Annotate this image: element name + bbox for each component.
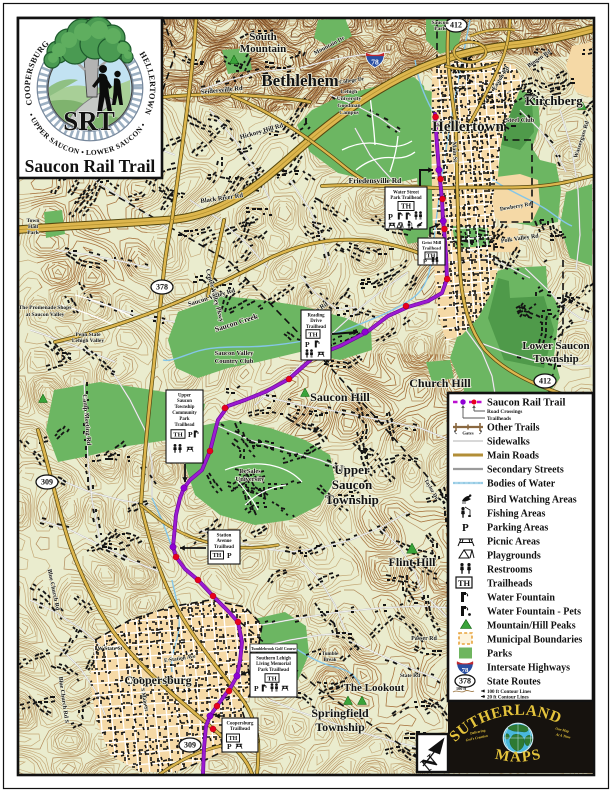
svg-text:TH: TH bbox=[173, 431, 182, 438]
svg-text:P: P bbox=[254, 684, 259, 693]
svg-text:South: South bbox=[249, 31, 277, 43]
svg-text:Main St: Main St bbox=[450, 142, 457, 163]
svg-text:P: P bbox=[227, 742, 232, 751]
svg-text:State Routes: State Routes bbox=[487, 677, 541, 688]
svg-text:Trailhead: Trailhead bbox=[175, 423, 195, 428]
svg-text:Secondary Streets: Secondary Streets bbox=[487, 465, 564, 476]
svg-text:Bird Watching Areas: Bird Watching Areas bbox=[487, 495, 577, 506]
svg-text:SRT: SRT bbox=[63, 106, 115, 136]
svg-text:Road Crossings: Road Crossings bbox=[487, 409, 522, 415]
svg-text:Fishing Areas: Fishing Areas bbox=[487, 509, 546, 520]
svg-text:Upper: Upper bbox=[334, 462, 370, 477]
svg-text:Station: Station bbox=[217, 533, 232, 538]
svg-text:378: 378 bbox=[156, 283, 168, 292]
svg-text:Other Trails: Other Trails bbox=[487, 423, 540, 434]
svg-text:Saucon Hill: Saucon Hill bbox=[310, 390, 370, 404]
svg-text:Bodies of Water: Bodies of Water bbox=[487, 479, 556, 490]
svg-text:Water Street: Water Street bbox=[393, 190, 419, 195]
svg-text:100 ft Contour Lines: 100 ft Contour Lines bbox=[487, 690, 531, 695]
svg-text:TH: TH bbox=[213, 553, 222, 559]
svg-text:Township: Township bbox=[175, 405, 195, 410]
svg-text:Mountain: Mountain bbox=[240, 43, 286, 55]
svg-text:P: P bbox=[305, 340, 310, 349]
svg-text:Mountain/Hill Peaks: Mountain/Hill Peaks bbox=[487, 621, 576, 632]
svg-text:P: P bbox=[188, 430, 193, 439]
svg-text:Water Fountain: Water Fountain bbox=[487, 593, 555, 604]
svg-text:P: P bbox=[462, 522, 469, 534]
svg-text:Reading: Reading bbox=[307, 313, 325, 318]
svg-text:University: University bbox=[337, 96, 362, 102]
svg-text:Park Trailhead: Park Trailhead bbox=[390, 196, 421, 201]
svg-text:Parking Areas: Parking Areas bbox=[487, 523, 548, 534]
svg-text:Avenue: Avenue bbox=[216, 539, 231, 544]
svg-text:Community: Community bbox=[172, 411, 197, 416]
svg-text:Country Club: Country Club bbox=[215, 358, 254, 365]
svg-text:Tumblebrook Golf Course: Tumblebrook Golf Course bbox=[251, 646, 296, 651]
svg-text:University: University bbox=[236, 476, 266, 483]
svg-text:Kirchberg: Kirchberg bbox=[525, 93, 583, 108]
svg-text:TH: TH bbox=[458, 578, 471, 588]
svg-text:309: 309 bbox=[41, 478, 53, 487]
svg-text:TH: TH bbox=[267, 675, 276, 682]
svg-text:Church Hill: Church Hill bbox=[409, 376, 471, 390]
svg-text:DeSales: DeSales bbox=[239, 468, 261, 475]
svg-text:Tumble: Tumble bbox=[322, 652, 339, 657]
svg-text:Springfield: Springfield bbox=[311, 706, 369, 720]
svg-text:P: P bbox=[423, 259, 427, 266]
svg-text:Saucon: Saucon bbox=[177, 399, 192, 404]
svg-text:Break: Break bbox=[324, 658, 337, 663]
svg-text:Flint Hill: Flint Hill bbox=[388, 555, 436, 569]
svg-text:100 ft: 100 ft bbox=[456, 686, 467, 691]
svg-text:Playgrounds: Playgrounds bbox=[487, 551, 541, 562]
svg-text:309: 309 bbox=[184, 741, 196, 750]
svg-text:P: P bbox=[388, 213, 393, 222]
svg-text:412: 412 bbox=[539, 377, 551, 386]
svg-text:Park: Park bbox=[179, 417, 189, 422]
svg-text:Trailhead: Trailhead bbox=[230, 727, 250, 732]
svg-text:Campus: Campus bbox=[339, 110, 359, 116]
svg-text:Saucon Rail Trail: Saucon Rail Trail bbox=[25, 156, 156, 176]
svg-text:Coopersburg: Coopersburg bbox=[227, 721, 255, 726]
svg-text:Hellertown: Hellertown bbox=[432, 119, 504, 135]
svg-text:Trailhead: Trailhead bbox=[214, 545, 234, 550]
svg-text:TH: TH bbox=[308, 331, 317, 338]
svg-text:TH: TH bbox=[427, 254, 436, 260]
svg-text:The Lookout: The Lookout bbox=[344, 682, 405, 694]
svg-text:Sidewalks: Sidewalks bbox=[487, 437, 530, 448]
svg-text:Picnic Areas: Picnic Areas bbox=[487, 537, 540, 548]
svg-text:Friedensville Rd: Friedensville Rd bbox=[349, 176, 403, 185]
svg-text:W State St: W State St bbox=[98, 646, 123, 652]
svg-text:The Promenade Shops: The Promenade Shops bbox=[19, 305, 72, 311]
svg-text:Steel Club: Steel Club bbox=[506, 117, 535, 124]
svg-text:78: 78 bbox=[371, 58, 379, 67]
svg-text:Upper: Upper bbox=[178, 393, 192, 398]
svg-text:20 ft Contour Lines: 20 ft Contour Lines bbox=[487, 696, 529, 701]
svg-text:Saucon Valley: Saucon Valley bbox=[215, 350, 255, 357]
svg-text:Southern Lehigh: Southern Lehigh bbox=[256, 656, 291, 661]
svg-text:at Saucon Valley: at Saucon Valley bbox=[26, 312, 65, 318]
svg-text:Coopersburg: Coopersburg bbox=[124, 673, 191, 687]
svg-text:Municipal Boundaries: Municipal Boundaries bbox=[487, 635, 582, 646]
svg-text:Gates: Gates bbox=[462, 431, 473, 436]
svg-text:Saucon: Saucon bbox=[332, 477, 373, 492]
svg-text:Township: Township bbox=[325, 492, 379, 507]
svg-text:Intersate Highways: Intersate Highways bbox=[487, 663, 570, 674]
svg-text:Township: Township bbox=[533, 353, 578, 365]
svg-text:Living Memorial: Living Memorial bbox=[256, 662, 291, 667]
svg-text:Lehigh Valley: Lehigh Valley bbox=[72, 338, 104, 344]
svg-text:78: 78 bbox=[462, 667, 469, 674]
svg-text:Water Fountain - Pets: Water Fountain - Pets bbox=[487, 607, 581, 618]
svg-text:Passer Rd: Passer Rd bbox=[411, 636, 437, 642]
svg-text:412: 412 bbox=[450, 21, 462, 30]
svg-text:Park: Park bbox=[434, 26, 447, 32]
svg-text:378: 378 bbox=[459, 677, 471, 686]
svg-text:Trailheads: Trailheads bbox=[487, 579, 532, 590]
svg-text:Trailhead: Trailhead bbox=[422, 245, 442, 250]
svg-text:Saucon Rail Trail: Saucon Rail Trail bbox=[487, 398, 565, 409]
svg-text:Goodman: Goodman bbox=[337, 103, 360, 109]
svg-text:Lehigh: Lehigh bbox=[341, 89, 358, 95]
svg-text:TH: TH bbox=[401, 203, 412, 211]
svg-text:State Rd: State Rd bbox=[400, 673, 420, 679]
svg-text:Restrooms: Restrooms bbox=[487, 565, 532, 576]
svg-text:Lower Saucon: Lower Saucon bbox=[522, 340, 589, 352]
svg-text:Bethlehem: Bethlehem bbox=[261, 71, 338, 90]
svg-text:Trailheads: Trailheads bbox=[487, 416, 511, 422]
svg-text:P: P bbox=[227, 551, 232, 560]
svg-text:Township: Township bbox=[315, 720, 365, 734]
svg-text:Park: Park bbox=[27, 230, 40, 236]
svg-text:Drive: Drive bbox=[310, 319, 321, 324]
svg-text:Parks: Parks bbox=[487, 649, 512, 660]
svg-text:Park Trailhead: Park Trailhead bbox=[258, 668, 289, 673]
svg-text:Main Roads: Main Roads bbox=[487, 451, 539, 462]
